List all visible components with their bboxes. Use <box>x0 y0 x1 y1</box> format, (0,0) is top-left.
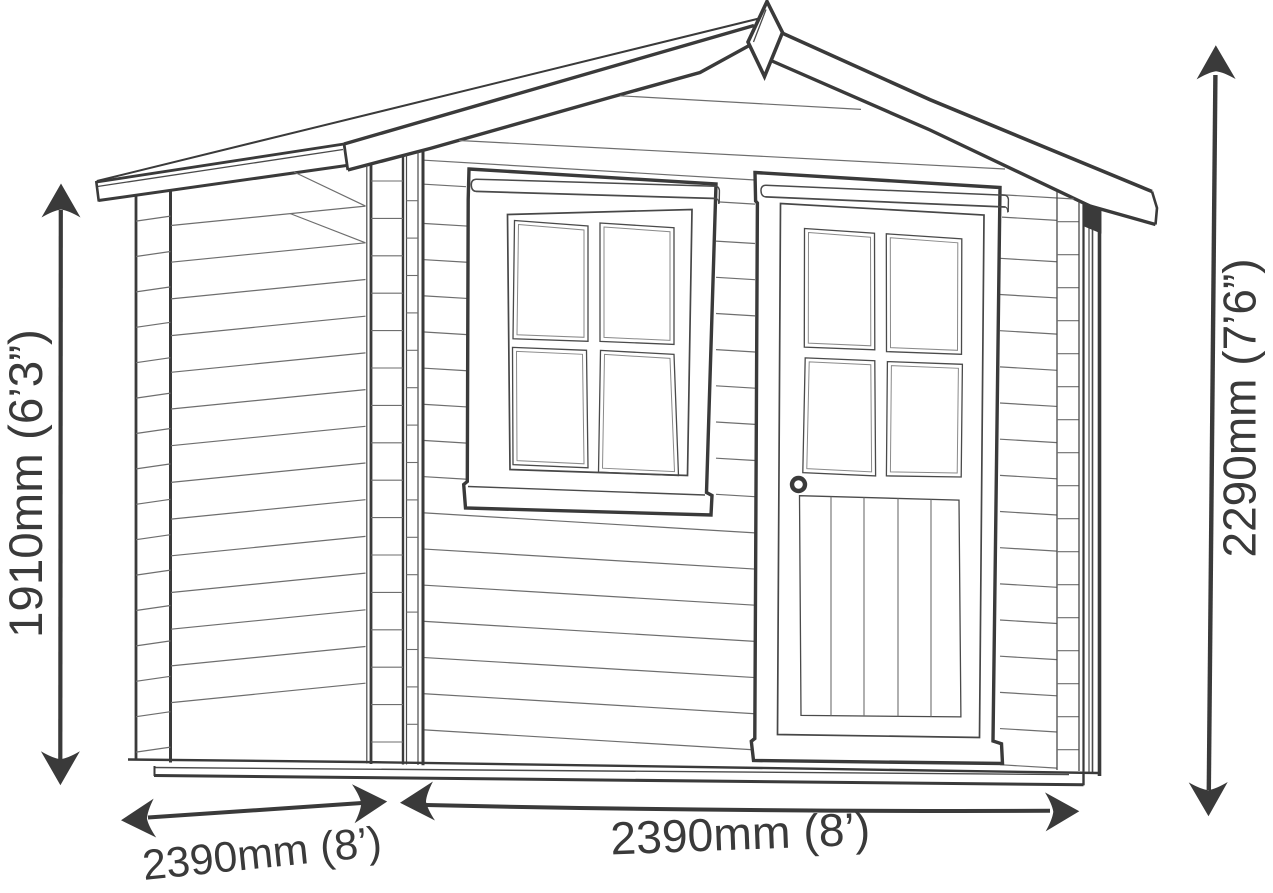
svg-text:1910mm (6’3”): 1910mm (6’3”) <box>0 329 53 638</box>
svg-text:2290mm (7’6”): 2290mm (7’6”) <box>1214 258 1266 557</box>
svg-text:2390mm (8’): 2390mm (8’) <box>609 803 871 865</box>
svg-text:2390mm (8’): 2390mm (8’) <box>140 818 384 890</box>
